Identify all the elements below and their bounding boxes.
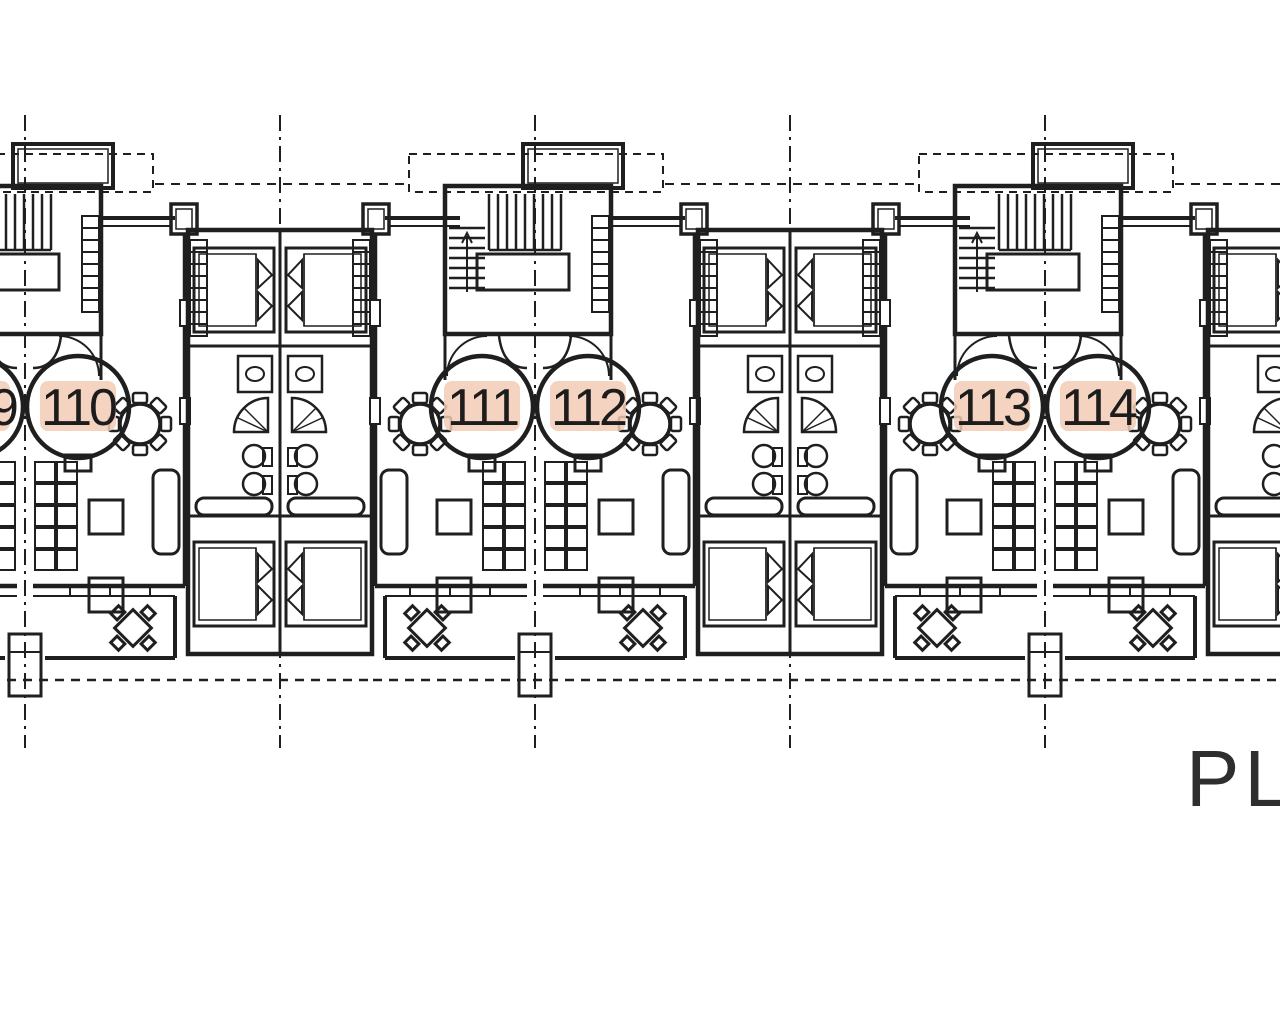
unit-number: 111 — [447, 379, 518, 437]
unit-number: 9 — [0, 379, 17, 437]
unit-number: 114 — [1061, 379, 1137, 437]
floor-plan-page: 9 110 111 112 113 114 PLA — [0, 0, 1280, 1024]
unit-number: 112 — [551, 379, 626, 437]
floor-plan-drawing: 9 110 111 112 113 114 PLA — [0, 0, 1280, 1024]
unit-number: 113 — [955, 379, 1030, 437]
plan-title-text: PLA — [1186, 734, 1280, 823]
unit-number: 110 — [41, 379, 116, 437]
